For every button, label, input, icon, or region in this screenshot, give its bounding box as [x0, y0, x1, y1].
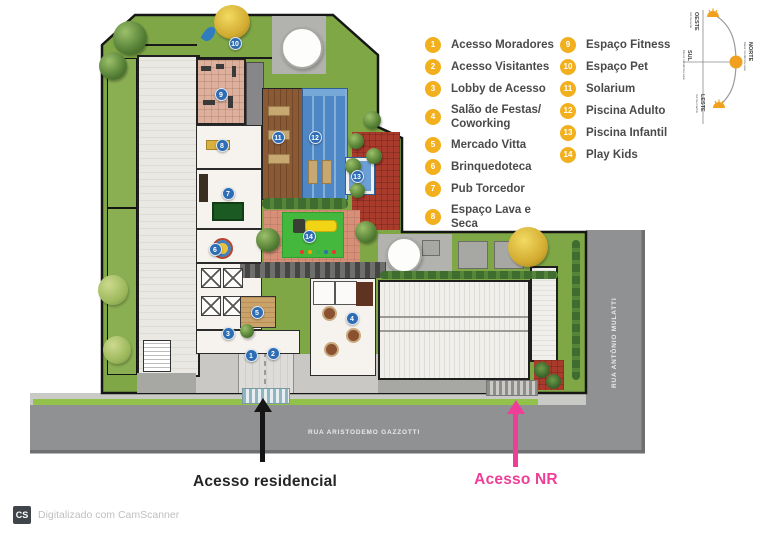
palm-tree — [546, 374, 561, 389]
roof-seam — [380, 316, 528, 318]
equipment-pad — [458, 241, 488, 269]
legend-number-badge: 2 — [425, 59, 441, 75]
in-pool-lounger — [308, 160, 318, 184]
tree — [113, 21, 147, 55]
tree — [366, 148, 382, 164]
sun-icon — [707, 9, 719, 18]
gym-equipment — [216, 64, 224, 69]
nr-arrow-stem — [513, 412, 518, 467]
play-toys — [300, 250, 304, 254]
legend-number-badge: 8 — [425, 209, 441, 225]
tree — [256, 228, 280, 252]
tree — [363, 111, 381, 129]
legend-number-badge: 14 — [560, 147, 576, 163]
sun-lounger — [268, 106, 290, 116]
camscanner-text: Digitalizado com CamScanner — [38, 509, 179, 521]
plan-marker-2: 2 — [267, 347, 280, 360]
legend-item-label: Solarium — [586, 82, 635, 96]
plan-marker-6: 6 — [209, 243, 222, 256]
legend-item-label: Acesso Moradores — [451, 38, 554, 52]
legend-item: 10Espaço Pet — [560, 59, 670, 75]
hall-table — [324, 308, 335, 319]
gym-equipment — [203, 100, 215, 105]
legend-item: 2Acesso Visitantes — [425, 59, 560, 75]
legend-item: 9Espaço Fitness — [560, 37, 670, 53]
sun-icon — [713, 100, 725, 109]
hall-table — [348, 330, 359, 341]
elevator — [201, 296, 221, 316]
gym-equipment — [201, 66, 211, 71]
stair-void — [143, 340, 171, 372]
gym-equipment — [232, 66, 236, 77]
flowering-tree — [214, 5, 250, 39]
plan-marker-14: 14 — [303, 230, 316, 243]
shrub — [240, 324, 254, 338]
pool-table — [212, 202, 244, 221]
legend-item: 13Piscina Infantil — [560, 125, 670, 141]
legend-number-badge: 3 — [425, 81, 441, 97]
legend-item: 7Pub Torcedor — [425, 181, 560, 197]
legend-number-badge: 12 — [560, 103, 576, 119]
legend-item: 6Brinquedoteca — [425, 159, 560, 175]
plan-marker-4: 4 — [346, 312, 359, 325]
plan-marker-3: 3 — [222, 327, 235, 340]
legend-number-badge: 13 — [560, 125, 576, 141]
solarium-deck — [262, 88, 304, 200]
residential-access-label: Acesso residencial — [160, 473, 370, 491]
residential-arrow-stem — [260, 410, 265, 462]
legend-column-2: 9Espaço Fitness10Espaço Pet11Solarium12P… — [560, 37, 670, 237]
plan-marker-8: 8 — [216, 139, 229, 152]
hall-table — [326, 344, 337, 355]
plan-marker-12: 12 — [309, 131, 322, 144]
wall — [197, 168, 261, 170]
legend-item: 14Play Kids — [560, 147, 670, 163]
compass-west-sub: Sol da tarde — [689, 12, 693, 29]
pool-steps — [303, 89, 345, 96]
legend-item-label: Espaço Lava e Seca — [451, 203, 560, 231]
tree — [99, 52, 127, 80]
water-tank — [281, 27, 323, 69]
legend-item: 3Lobby de Acesso — [425, 81, 560, 97]
paving-pad — [137, 373, 196, 393]
roof-seam — [380, 330, 528, 332]
plan-marker-7: 7 — [222, 187, 235, 200]
compass-north-dot — [730, 56, 743, 69]
wall — [197, 262, 261, 264]
compass-east-sub: Sol da manhã — [695, 94, 699, 113]
compass-north-sub: Maior incidência solar — [743, 42, 747, 71]
nr-wing-roof — [530, 266, 558, 362]
shrub — [348, 133, 364, 149]
legend-number-badge: 9 — [560, 37, 576, 53]
legend-item-label: Brinquedoteca — [451, 160, 532, 174]
legend-column-1: 1Acesso Moradores2Acesso Visitantes3Lobb… — [425, 37, 560, 237]
equipment-pad — [422, 240, 440, 256]
nr-access-label: Acesso NR — [433, 471, 599, 489]
sun-lounger — [268, 154, 290, 164]
legend: 1Acesso Moradores2Acesso Visitantes3Lobb… — [425, 37, 670, 237]
legend-number-badge: 10 — [560, 59, 576, 75]
legend-item-label: Acesso Visitantes — [451, 60, 549, 74]
legend-item: 5Mercado Vitta — [425, 137, 560, 153]
gym-equipment — [228, 96, 233, 108]
plan-marker-9: 9 — [215, 88, 228, 101]
hall-bar — [356, 282, 373, 306]
plan-marker-1: 1 — [245, 349, 258, 362]
site-plan-page: RUA ARISTODEMO GAZZOTTI RUA ANTÔNIO MULA… — [0, 0, 763, 533]
legend-item: 11Solarium — [560, 81, 670, 97]
legend-item-label: Lobby de Acesso — [451, 82, 546, 96]
street-label-bottom: RUA ARISTODEMO GAZZOTTI — [308, 429, 420, 436]
legend-item: 12Piscina Adulto — [560, 103, 670, 119]
nr-loading-ramp — [486, 380, 538, 396]
legend-item: 8Espaço Lava e Seca — [425, 203, 560, 231]
in-pool-lounger — [322, 160, 332, 184]
planting-bed — [107, 58, 137, 208]
bathroom-cell — [313, 281, 335, 305]
hedge-row — [380, 271, 558, 279]
legend-number-badge: 4 — [425, 109, 441, 125]
legend-number-badge: 7 — [425, 181, 441, 197]
legend-item-label: Mercado Vitta — [451, 138, 526, 152]
shrub — [350, 183, 365, 198]
plan-marker-11: 11 — [272, 131, 285, 144]
pub-bar — [199, 174, 208, 202]
tree — [355, 221, 377, 243]
legend-number-badge: 5 — [425, 137, 441, 153]
legend-item-label: Salão de Festas/ Coworking — [451, 103, 541, 131]
street-edge-bottom — [30, 450, 645, 454]
tree — [98, 275, 128, 305]
elevator — [201, 268, 221, 288]
water-tank — [386, 237, 422, 273]
hedge-column — [572, 240, 580, 380]
legend-item: 1Acesso Moradores — [425, 37, 560, 53]
compass: OESTE Sol da tarde NORTE Maior incidênci… — [683, 4, 763, 132]
compass-south-sub: Menor incidência solar — [683, 50, 686, 80]
legend-item-label: Espaço Pet — [586, 60, 648, 74]
plan-marker-10: 10 — [229, 37, 242, 50]
legend-number-badge: 1 — [425, 37, 441, 53]
camscanner-logo: CS — [13, 506, 31, 524]
plan-marker-5: 5 — [251, 306, 264, 319]
camscanner-footer: CS Digitalizado com CamScanner — [13, 506, 179, 524]
legend-item-label: Piscina Adulto — [586, 104, 665, 118]
legend-item: 4Salão de Festas/ Coworking — [425, 103, 560, 131]
street-edge-right — [642, 230, 646, 452]
street-label-right: RUA ANTÔNIO MULATTI — [609, 298, 618, 388]
covered-walkway — [240, 262, 386, 278]
legend-number-badge: 11 — [560, 81, 576, 97]
legend-item-label: Piscina Infantil — [586, 126, 667, 140]
elevator — [223, 268, 243, 288]
residential-tower-roof — [137, 55, 200, 377]
legend-item-label: Pub Torcedor — [451, 182, 525, 196]
hedge-row — [262, 198, 348, 209]
legend-number-badge: 6 — [425, 159, 441, 175]
wall — [197, 228, 261, 230]
tree — [103, 336, 131, 364]
bathroom-cell — [335, 281, 357, 305]
play-mat — [293, 219, 305, 233]
fence-line — [196, 57, 272, 59]
legend-item-label: Play Kids — [586, 148, 638, 162]
plan-marker-13: 13 — [351, 170, 364, 183]
legend-item-label: Espaço Fitness — [586, 38, 670, 52]
